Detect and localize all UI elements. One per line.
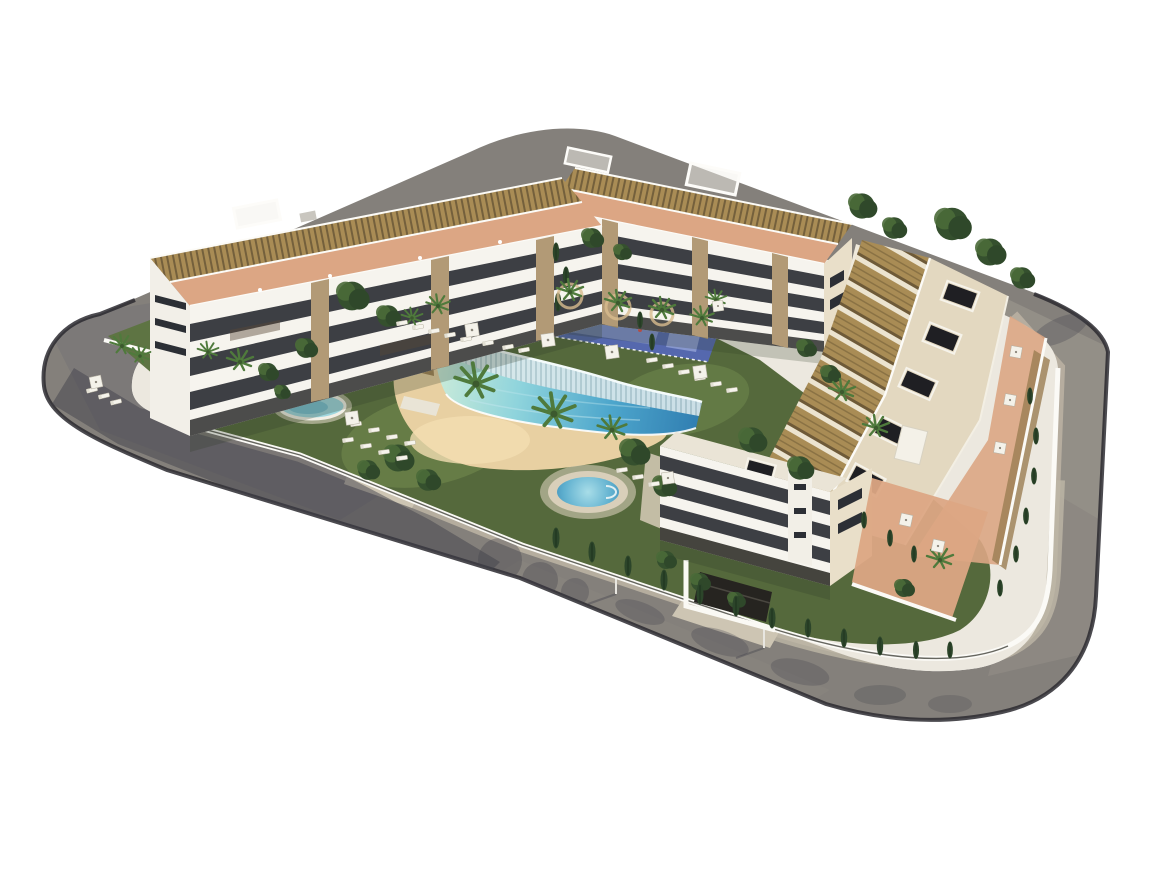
aerial-render-canvas xyxy=(0,0,1165,880)
stone-pillar xyxy=(311,279,329,402)
roof-frame xyxy=(233,200,280,228)
stone-pillar xyxy=(536,236,554,341)
spa-pool xyxy=(540,465,636,519)
stone-pillar xyxy=(602,219,618,328)
aerial-render-stage xyxy=(0,0,1165,880)
stone-pillar xyxy=(772,253,788,348)
stair-tower xyxy=(788,466,812,566)
sand-highlight xyxy=(410,416,530,464)
stone-pillar xyxy=(431,256,449,370)
